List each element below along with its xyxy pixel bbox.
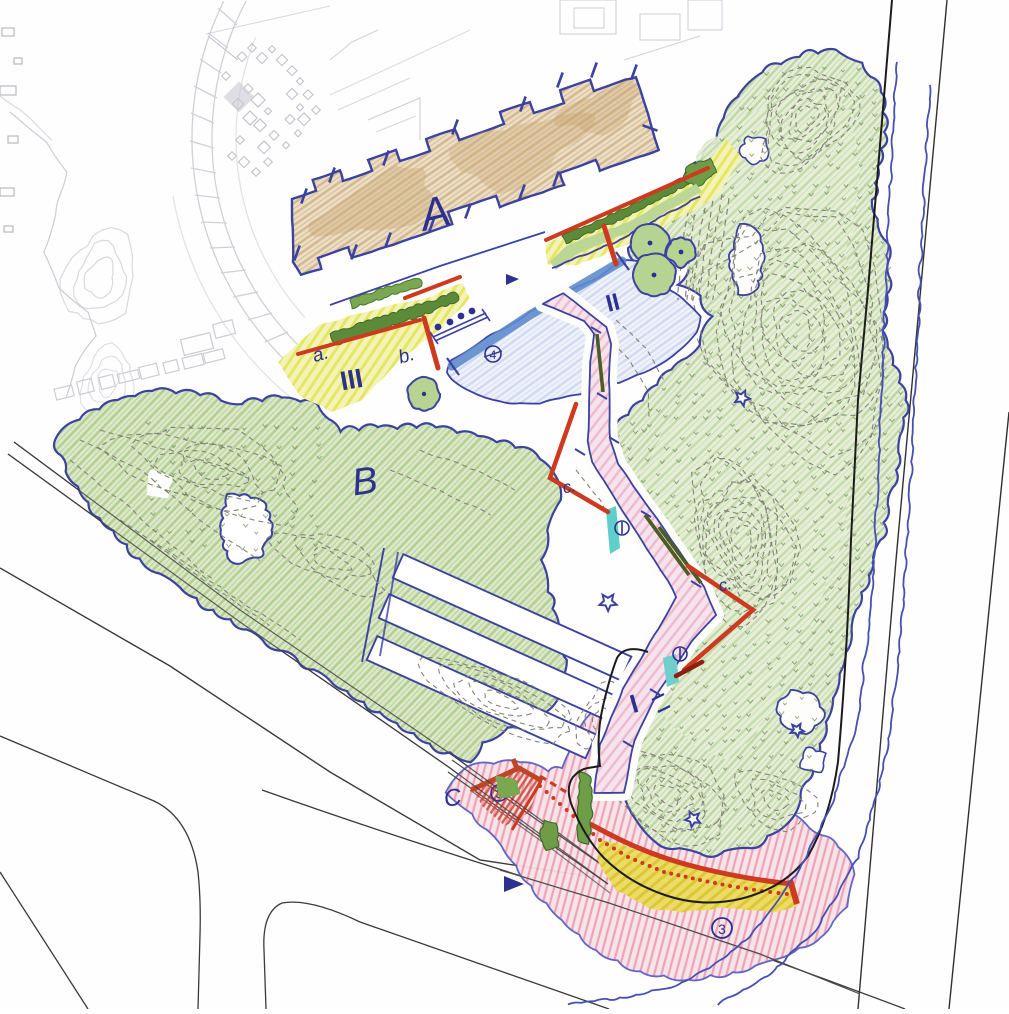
- svg-text:3: 3: [718, 921, 726, 937]
